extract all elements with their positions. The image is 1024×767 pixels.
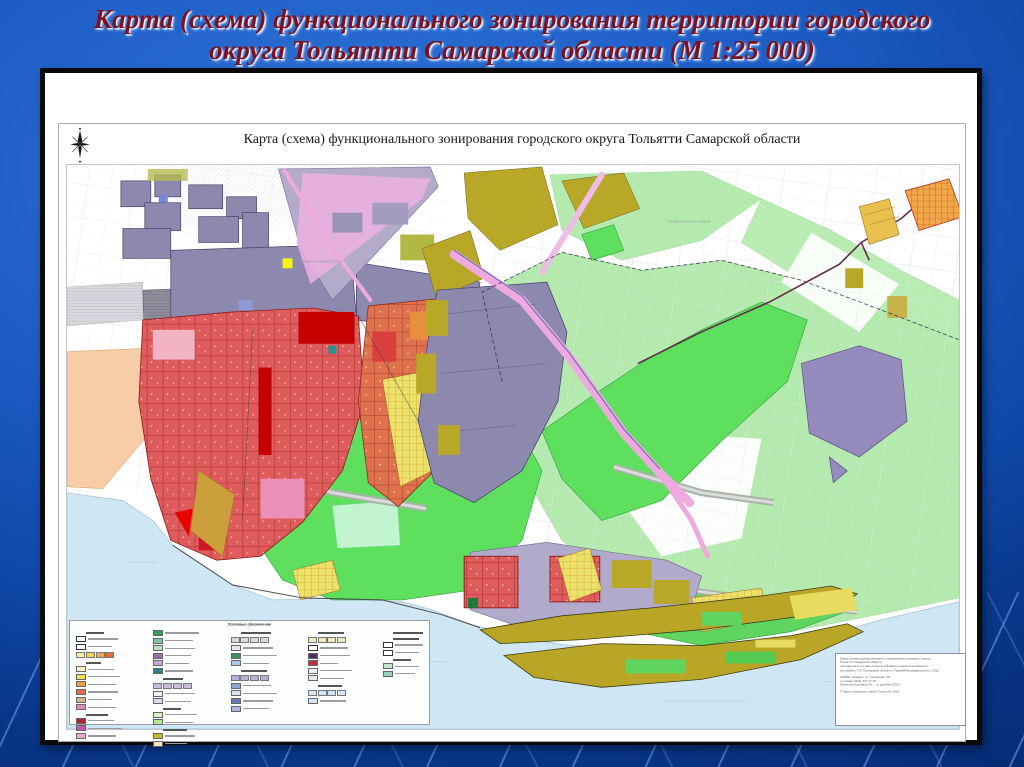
svg-text:Ставропольский район: Ставропольский район <box>666 219 711 224</box>
map-title: Карта (схема) функционального зонировани… <box>99 132 945 148</box>
legend-title: Условные обозначения <box>141 623 359 627</box>
map-frame-box: Карта (схема) функционального зонировани… <box>40 68 982 745</box>
map-stamp: Карта (схема) функционального зонировани… <box>835 653 966 726</box>
presentation-slide: Карта (схема) функционального зонировани… <box>0 0 1024 767</box>
slide-title-line2: округа Тольятти Самарской области (М 1:2… <box>209 35 815 65</box>
stamp-lines: Карта (схема) функционального зонировани… <box>836 654 966 697</box>
map-page: Карта (схема) функционального зонировани… <box>58 123 966 742</box>
map-legend: Условные обозначения <box>69 620 430 725</box>
slide-title-line1: Карта (схема) функционального зонировани… <box>94 4 931 34</box>
svg-text:Ставропольский район: Ставропольский район <box>298 258 343 263</box>
legend-columns <box>74 629 425 748</box>
slide-title: Карта (схема) функционального зонировани… <box>20 4 1004 66</box>
compass-rose-icon <box>67 127 93 163</box>
